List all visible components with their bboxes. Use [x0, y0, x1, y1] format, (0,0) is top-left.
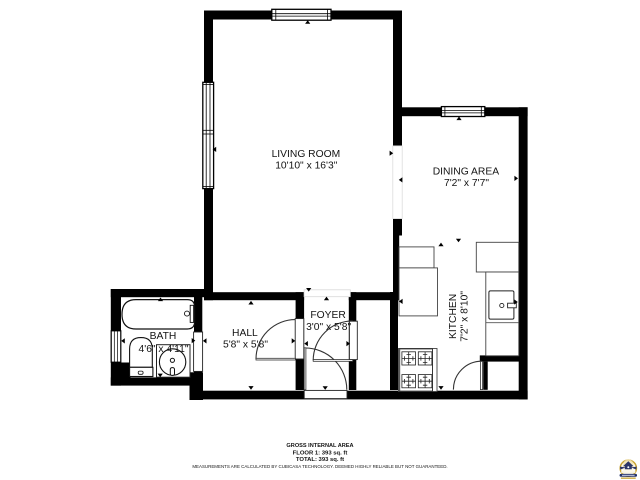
svg-text:FLOOR 1: 393 sq. ft: FLOOR 1: 393 sq. ft	[293, 450, 348, 456]
svg-text:MEASUREMENTS ARE CALCULATED BY: MEASUREMENTS ARE CALCULATED BY CUBICASA …	[192, 464, 447, 469]
svg-text:4'6" x 4'11": 4'6" x 4'11"	[139, 344, 189, 355]
svg-text:GROSS INTERNAL AREA: GROSS INTERNAL AREA	[286, 443, 353, 449]
svg-text:FOYER: FOYER	[310, 310, 345, 321]
svg-text:DINING AREA: DINING AREA	[433, 167, 500, 178]
svg-text:BATH: BATH	[150, 331, 177, 342]
svg-text:10'10" x 16'3": 10'10" x 16'3"	[275, 161, 338, 172]
svg-text:HALL: HALL	[232, 328, 258, 339]
svg-text:KITCHEN: KITCHEN	[448, 294, 459, 339]
svg-text:TOTAL: 393 sq. ft: TOTAL: 393 sq. ft	[296, 457, 344, 463]
svg-text:7'2" x 8'10": 7'2" x 8'10"	[460, 291, 471, 342]
svg-text:LIVING ROOM: LIVING ROOM	[272, 149, 341, 160]
svg-text:3'0" x 5'8": 3'0" x 5'8"	[306, 322, 351, 333]
svg-text:7'2" x 7'7": 7'2" x 7'7"	[444, 178, 489, 189]
svg-text:5'8" x 5'8": 5'8" x 5'8"	[223, 339, 268, 350]
